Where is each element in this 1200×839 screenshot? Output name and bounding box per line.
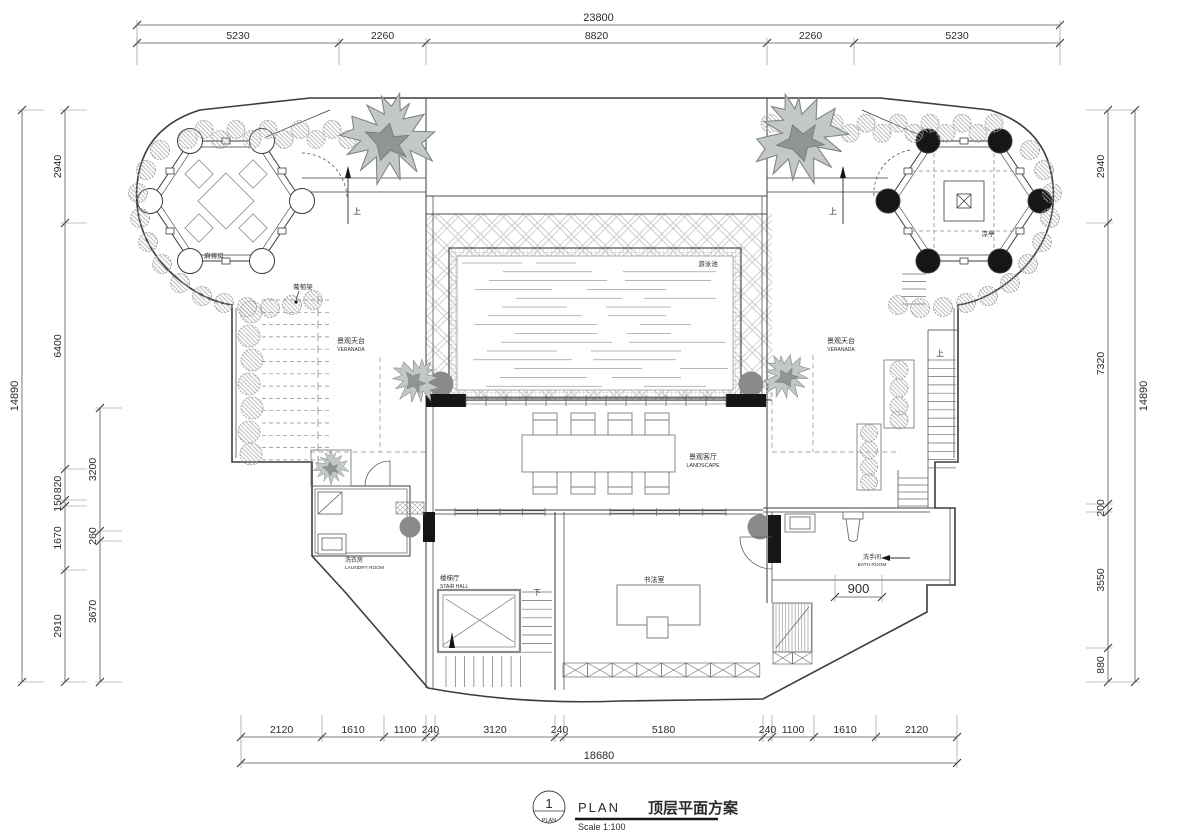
dimension-label: 1670 [52,526,64,550]
shrub-icon [911,299,930,318]
shrub-icon [179,131,197,149]
veranda-left-label-cn: 景观天台 [337,336,365,345]
living-label-en: LANDSCAPE [686,463,720,469]
shrub-icon [131,209,150,228]
shrub-icon [307,131,325,149]
drawing-title-cn: 顶层平面方案 [648,799,739,817]
shrub-icon [1001,274,1020,293]
dimension-label: 2940 [1095,155,1107,179]
shrub-icon [238,373,260,395]
stair-flight-line [446,599,514,642]
stair-hall-label-cn: 楼梯厅 [440,573,460,582]
shrub-icon [275,131,293,149]
dimension-label: 6400 [52,334,64,358]
shrub-icon [890,361,908,379]
shrub-icon [979,287,998,306]
dimension-label: 8820 [585,30,609,42]
shrub-icon [215,294,234,313]
shrub-icon [889,114,907,132]
leader-dot [294,300,297,303]
shrub-icon [291,121,309,139]
floor-plan-page: 麻将房 凉亭 葡萄架 景观天台 VERANADA 景观天台 VERANADA 游… [0,0,1200,839]
shrub-icon [259,121,277,139]
dimension-label: 240 [422,724,440,736]
calligraphy-label: 书法室 [644,575,665,584]
shrub-icon [171,274,190,293]
up-marker: 上 [936,349,944,358]
black-pier [768,515,781,563]
swimming-pool [449,248,741,398]
stair-treads [446,592,552,687]
dimension-label: 1100 [394,724,417,736]
dimension-label: 3200 [87,458,99,482]
shrub-icon [957,294,976,313]
grape-trellis [262,296,330,464]
laundry-label-cn: 洗衣房 [345,556,363,564]
veranda-right-label-cn: 景观天台 [827,336,855,345]
dimension-label: 260 [87,527,99,545]
shrub-icon [323,121,341,139]
veranda-left-label-en: VERANADA [337,347,365,353]
hatched-wall-pier [396,502,424,514]
pavilion-right-label: 凉亭 [982,229,996,238]
shrub-icon [238,421,260,443]
shrub-icon [857,114,875,132]
shrub-icon [905,124,923,142]
drawing-name-en: PLAN [578,800,620,815]
pool-water-basin [457,256,733,390]
bath-label-cn: 洗手间 [863,553,881,561]
shrub-icon [890,379,908,397]
grey-column [739,372,764,397]
dimension-label: 200 [1095,499,1107,517]
shrub-icon [193,287,212,306]
dimension-label: 240 [759,724,777,736]
shrub-icon [211,131,229,149]
dimension-label: 2260 [799,30,823,42]
veranda-right-label-en: VERANADA [827,347,855,353]
shrub-icon [890,411,908,429]
chairs-bottom [533,472,669,494]
washing-machine-drum [322,538,342,550]
grey-column [429,372,454,397]
black-pier [726,394,766,407]
bubble-caption: PLAN [542,818,556,824]
dimension-label: 3120 [483,724,507,736]
dimension-label: 23800 [583,12,614,24]
dimension-label: 880 [1095,656,1107,674]
south-window-strip [563,652,812,677]
toilet-bowl [846,519,860,542]
shrub-icon [1021,141,1040,160]
stair-hall-label-en: STAIR HALL [440,584,468,590]
shrub-icon [137,161,156,180]
dimension-label: 2260 [371,30,395,42]
dimension-label: 5180 [652,724,676,736]
dimension-label: 7320 [1095,352,1107,376]
shrub-icon [861,442,878,459]
bath-label-en: BATH ROOM [858,562,887,568]
shrub-icon [969,124,987,142]
calligraphy-chair [647,617,668,638]
shrub-icon [1019,255,1038,274]
black-pier [423,512,435,542]
shrub-icon [921,114,939,132]
drawing-number: 1 [545,796,552,811]
living-room-furniture [522,413,675,494]
title-block: 1 PLAN PLAN 顶层平面方案 Scale 1:100 [533,791,739,832]
up-arrow-icon [840,166,846,178]
tree-icon [313,450,349,485]
dimension-label: 3670 [87,600,99,624]
shrub-icon [873,124,891,142]
dimension-label: 18680 [584,750,615,762]
shrub-icon [1041,209,1060,228]
long-table [522,435,675,472]
dimension-label: 1610 [833,724,857,736]
dimension-label: 1610 [341,724,365,736]
up-marker: 上 [353,207,361,216]
dimension-label: 150 [52,494,64,512]
pool-court-ledge [426,196,767,214]
mahjong-table-set [185,160,267,242]
shrub-icon [985,114,1003,132]
grey-column [400,517,421,538]
chairs-top [533,413,669,435]
trellis-label: 葡萄架 [293,282,313,291]
dimension-label: 14890 [9,381,21,412]
shrub-icon [241,397,263,419]
down-marker: 下 [533,588,541,597]
shrub-icon [934,298,953,317]
shrub-icon [937,124,955,142]
bath-basin [790,517,810,529]
shrub-icon [261,299,280,318]
floor-plan-drawing: 麻将房 凉亭 葡萄架 景观天台 VERANADA 景观天台 VERANADA 游… [0,0,1200,839]
shrub-icon [953,114,971,132]
shrub-icon [129,184,148,203]
dimension-label: 3550 [1095,568,1107,592]
table [198,173,254,229]
living-label-cn: 景观客厅 [689,452,717,461]
dimension-label: 240 [551,724,569,736]
dimension-label: 1100 [782,724,805,736]
shrub-icon [195,121,213,139]
entry-arrow-icon [881,555,890,561]
shrub-icon [861,425,878,442]
shrub-icon [151,141,170,160]
shrub-icon [240,301,262,323]
shrub-icon [139,233,158,252]
black-pier [426,394,466,407]
dimension-label: 2940 [52,155,64,179]
pavilion-left-label: 麻将房 [204,251,224,260]
shrub-icon [861,459,878,476]
pool-label: 游泳池 [698,259,718,268]
dimension-label: 14890 [1138,381,1150,412]
dimension-label: 2910 [52,614,64,638]
dimension-label: 900 [848,581,870,596]
shrub-icon [241,349,263,371]
shrub-icon [1035,161,1054,180]
up-marker: 上 [829,207,837,216]
dimension-label: 820 [52,476,64,494]
shrub-icon [861,474,878,491]
laundry-label-en: LAUNDRY ROOM [345,565,384,571]
stair-hall-stairs [438,590,552,687]
drawing-scale: Scale 1:100 [578,822,626,832]
shrub-icon [283,296,302,315]
shrub-icon [240,443,262,465]
shrub-icon [227,121,245,139]
dimension-label: 2120 [270,724,294,736]
shrub-icon [153,255,172,274]
up-arrow-icon [345,166,351,178]
shrub-icon [238,325,260,347]
shrub-icon [243,131,261,149]
dimension-label: 5230 [945,30,969,42]
laundry-door-swing [365,461,390,486]
shrub-icon [1033,233,1052,252]
dimension-label: 5230 [226,30,250,42]
shrub-icon [889,296,908,315]
dimension-label: 2120 [905,724,929,736]
pavilion-center-table [957,194,971,208]
shrub-icon [1043,184,1062,203]
toilet-tank [843,512,863,519]
